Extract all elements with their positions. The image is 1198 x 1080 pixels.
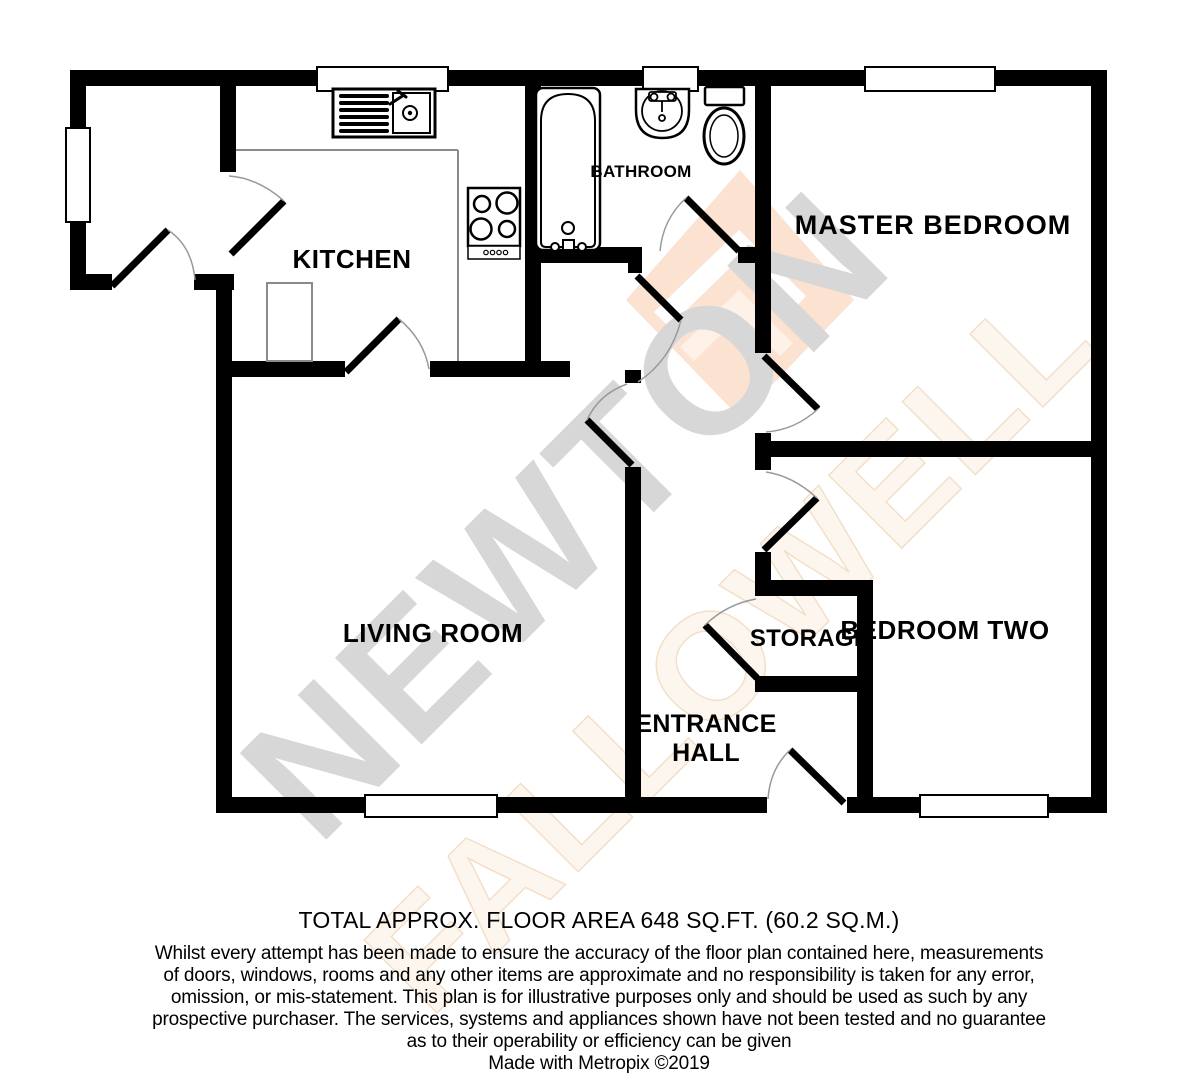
- disclaimer-line-5: as to their operability or efficiency ca…: [0, 1031, 1198, 1053]
- hob-burner: [471, 219, 492, 240]
- label-bedroom-two: BEDROOM TWO: [840, 615, 1049, 645]
- disclaimer-line-1: Whilst every attempt has been made to en…: [0, 943, 1198, 965]
- disclaimer-line-2: of doors, windows, rooms and any other i…: [0, 965, 1198, 987]
- toilet: [704, 87, 744, 164]
- wall-storage-bottom: [755, 676, 873, 692]
- wall-entry-kitchen-divider: [220, 86, 236, 172]
- label-living-room: LIVING ROOM: [343, 618, 523, 648]
- window-bathroom: [643, 67, 698, 91]
- door-entry-to-kitchen: [229, 176, 284, 254]
- disclaimer-line-4: prospective purchaser. The services, sys…: [0, 1009, 1198, 1031]
- wall-living-left: [216, 274, 232, 813]
- label-kitchen: KITCHEN: [292, 244, 411, 274]
- window-bedroom-two: [920, 795, 1048, 817]
- bathtub-drain: [562, 222, 574, 234]
- kitchen-sink: [333, 89, 435, 137]
- window-living-room: [365, 795, 497, 817]
- window-kitchen: [317, 67, 448, 91]
- kitchen-cupboard: [267, 283, 312, 361]
- hob-burner: [497, 193, 518, 214]
- label-bathroom: BATHROOM: [590, 162, 691, 181]
- label-master-bedroom: MASTER BEDROOM: [795, 210, 1072, 240]
- toilet-bowl-inner: [710, 115, 738, 157]
- wall-kitchen-bottom-a: [216, 361, 345, 377]
- wall-bath-doortab: [628, 247, 642, 273]
- wall-master-bottom: [755, 441, 1091, 457]
- door-front-entry: [112, 230, 195, 286]
- metropix-credit: Made with Metropix ©2019: [0, 1053, 1198, 1075]
- disclaimer-line-3: omission, or mis-statement. This plan is…: [0, 987, 1198, 1009]
- wall-entry-bottom-a: [70, 274, 112, 290]
- wall-right: [1091, 70, 1107, 813]
- window-master-bedroom: [865, 67, 995, 91]
- stove-hob: [468, 188, 520, 259]
- floorplan-page: NEWTON FALLOWELL: [0, 0, 1198, 1080]
- sink-drain-dot: [408, 111, 412, 115]
- door-kitchen-living: [346, 319, 429, 372]
- hob-burner: [499, 221, 515, 237]
- toilet-tank: [705, 87, 744, 105]
- window-entry-side: [66, 128, 90, 222]
- wall-living-right: [625, 467, 641, 797]
- label-entrance-hall-line2: HALL: [672, 739, 740, 767]
- total-floor-area: TOTAL APPROX. FLOOR AREA 648 SQ.FT. (60.…: [0, 907, 1198, 934]
- label-entrance-hall-line1: ENTRANCE: [635, 710, 776, 738]
- wall-storage-top: [755, 580, 873, 596]
- wall-master-left-a: [755, 86, 771, 353]
- door-entrance-hall: [768, 750, 844, 803]
- wall-kitchen-bottom-b: [430, 361, 570, 377]
- hob-burner: [474, 196, 490, 212]
- wash-basin: [636, 89, 689, 138]
